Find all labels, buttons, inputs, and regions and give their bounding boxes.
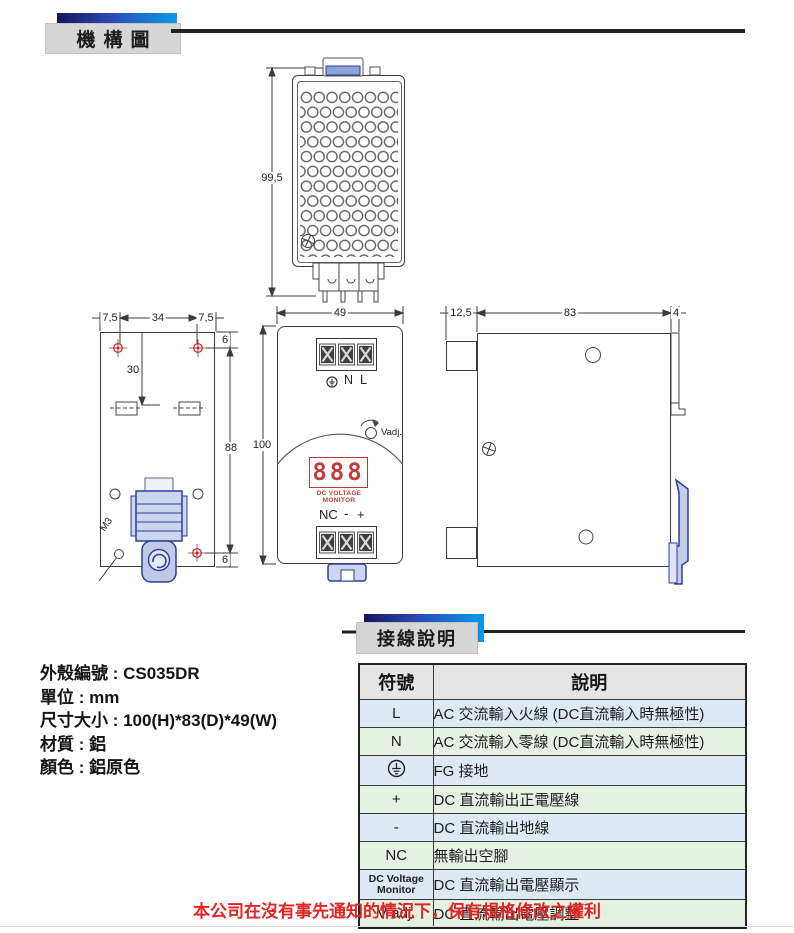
symbol-cell: NC bbox=[359, 842, 433, 870]
table-row: NC 無輸出空腳 bbox=[359, 842, 746, 870]
terminal-label-nc: NC bbox=[319, 507, 338, 522]
dim-front-width: 49 bbox=[332, 307, 348, 319]
symbol-cell bbox=[359, 756, 433, 786]
terminal-screw-icon bbox=[338, 341, 355, 368]
dim-side-depth: 83 bbox=[562, 307, 578, 319]
description-cell: AC 交流輸入火線 (DC直流輸入時無極性) bbox=[433, 700, 746, 728]
page-bottom-rule bbox=[0, 926, 794, 927]
vadj-label: Vadj. bbox=[381, 427, 402, 438]
description-cell: DC 直流輸出電壓顯示 bbox=[433, 870, 746, 900]
col-header-description: 說明 bbox=[433, 664, 746, 700]
front-view-terminal-block-bottom bbox=[316, 526, 377, 559]
disclaimer-note: 本公司在沒有事先通知的情況下，保有規格修改之權利 bbox=[0, 897, 794, 922]
spec-color: 顏色 : 鋁原色 bbox=[40, 756, 277, 780]
description-cell: AC 交流輸入零線 (DC直流輸入時無極性) bbox=[433, 728, 746, 756]
front-view-terminal-block-top bbox=[316, 338, 377, 371]
table-row: - DC 直流輸出地線 bbox=[359, 814, 746, 842]
table-row: L AC 交流輸入火線 (DC直流輸入時無極性) bbox=[359, 700, 746, 728]
symbol-cell: N bbox=[359, 728, 433, 756]
earth-ground-icon bbox=[326, 375, 338, 393]
dim-front-height: 100 bbox=[251, 439, 273, 451]
dim-top-view-height: 99,5 bbox=[259, 172, 284, 184]
side-view-screw-icon bbox=[481, 441, 498, 458]
spec-unit: 單位 : mm bbox=[40, 686, 277, 710]
terminal-screw-icon bbox=[338, 529, 355, 556]
top-view-screw-icon bbox=[299, 232, 316, 249]
dim-rear-hole-span: 34 bbox=[150, 312, 166, 324]
dim-rear-slot-offset: 30 bbox=[125, 364, 141, 376]
dim-side-front-offset: 12,5 bbox=[448, 307, 473, 319]
symbol-cell: - bbox=[359, 814, 433, 842]
wiring-table: 符號 說明 L AC 交流輸入火線 (DC直流輸入時無極性) N AC 交流輸入… bbox=[358, 663, 747, 929]
spec-material: 材質 : 鋁 bbox=[40, 733, 277, 757]
datasheet-page: 機構圖 bbox=[0, 0, 794, 933]
symbol-cell: + bbox=[359, 786, 433, 814]
earth-ground-icon bbox=[387, 759, 406, 778]
top-view-din-clip bbox=[305, 58, 380, 76]
wiring-table-header-row: 符號 說明 bbox=[359, 664, 746, 700]
terminal-screw-icon bbox=[357, 341, 374, 368]
dim-side-rail: 4 bbox=[671, 307, 681, 319]
terminal-screw-icon bbox=[357, 529, 374, 556]
description-cell: DC 直流輸出正電壓線 bbox=[433, 786, 746, 814]
description-cell: 無輸出空腳 bbox=[433, 842, 746, 870]
front-view-din-tab bbox=[328, 564, 366, 581]
terminal-screw-icon bbox=[319, 529, 336, 556]
terminal-label-l: L bbox=[360, 373, 367, 387]
terminal-label-n: N bbox=[344, 373, 353, 387]
dim-rear-top-offset: 6 bbox=[220, 334, 230, 346]
dim-rear-left-margin: 7,5 bbox=[100, 312, 119, 324]
terminal-screw-icon bbox=[319, 341, 336, 368]
terminal-label-minus: - bbox=[344, 505, 349, 521]
section2-title: 接線說明 bbox=[356, 622, 478, 654]
top-view-bottom-connector bbox=[313, 263, 384, 302]
col-header-symbol: 符號 bbox=[359, 664, 433, 700]
dc-voltage-display-caption: DC VOLTAGE MONITOR bbox=[301, 490, 377, 504]
table-row: + DC 直流輸出正電壓線 bbox=[359, 786, 746, 814]
m3-screw-hole bbox=[115, 550, 124, 559]
spec-size: 尺寸大小 : 100(H)*83(D)*49(W) bbox=[40, 709, 277, 733]
spec-case-number: 外殼編號 : CS035DR bbox=[40, 662, 277, 686]
description-cell: FG 接地 bbox=[433, 756, 746, 786]
vadj-potentiometer bbox=[361, 420, 379, 439]
terminal-label-plus: + bbox=[357, 507, 365, 522]
section2-rule bbox=[484, 630, 745, 633]
dim-rear-right-margin: 7,5 bbox=[196, 312, 215, 324]
side-view-details bbox=[481, 333, 685, 544]
table-row: FG 接地 bbox=[359, 756, 746, 786]
spec-block: 外殼編號 : CS035DR 單位 : mm 尺寸大小 : 100(H)*83(… bbox=[40, 662, 277, 780]
dim-rear-hole-height: 88 bbox=[223, 442, 239, 454]
side-view-din-clip bbox=[669, 480, 688, 584]
dim-rear-bottom-offset: 6 bbox=[220, 554, 230, 566]
table-row: N AC 交流輸入零線 (DC直流輸入時無極性) bbox=[359, 728, 746, 756]
description-cell: DC 直流輸出地線 bbox=[433, 814, 746, 842]
rear-view-din-clip bbox=[131, 478, 187, 582]
dc-voltage-display: 888 bbox=[309, 457, 368, 488]
table-row: DC Voltage Monitor DC 直流輸出電壓顯示 bbox=[359, 870, 746, 900]
symbol-cell: L bbox=[359, 700, 433, 728]
symbol-cell: DC Voltage Monitor bbox=[359, 870, 433, 900]
